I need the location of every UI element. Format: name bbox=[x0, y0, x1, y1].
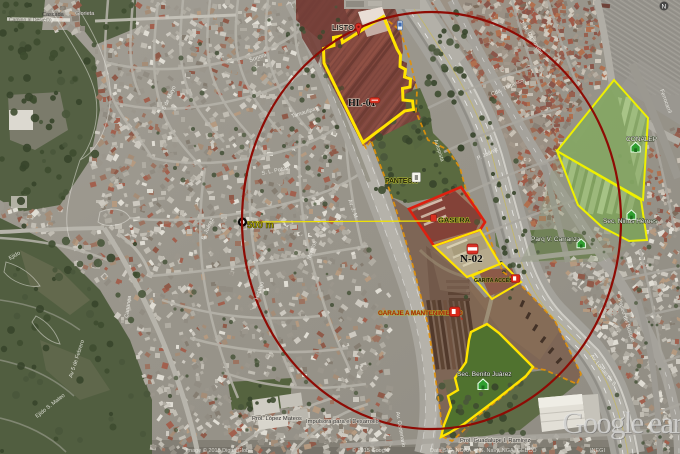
svg-text:Impulsora para el Desarrollo: Impulsora para el Desarrollo bbox=[306, 419, 379, 425]
svg-text:Sec. Benito Juárez: Sec. Benito Juárez bbox=[457, 371, 512, 378]
svg-text:Image © 2015 DigitalGlobe: Image © 2015 DigitalGlobe bbox=[186, 447, 252, 454]
svg-text:Prol. Guadalupe I. Ramírez: Prol. Guadalupe I. Ramírez bbox=[460, 438, 530, 444]
svg-text:500 m: 500 m bbox=[247, 220, 274, 231]
svg-text:N: N bbox=[662, 4, 667, 11]
svg-text:GASERA: GASERA bbox=[438, 216, 471, 225]
svg-text:Prol. López Mateos: Prol. López Mateos bbox=[252, 416, 302, 422]
svg-text:INEGI: INEGI bbox=[590, 448, 605, 454]
svg-text:N-02: N-02 bbox=[460, 253, 483, 265]
svg-text:LISTO: LISTO bbox=[332, 23, 354, 32]
svg-text:Data SIO, NOAA, U.S. Navy, NGA: Data SIO, NOAA, U.S. Navy, NGA, GEBCO bbox=[430, 448, 537, 454]
svg-text:Parq V. Carranza: Parq V. Carranza bbox=[531, 236, 581, 243]
svg-text:Glorieta: Glorieta bbox=[75, 11, 95, 17]
svg-text:Google earth: Google earth bbox=[562, 405, 680, 440]
svg-text:CONALEP: CONALEP bbox=[626, 136, 657, 143]
svg-text:GARITA ACCESO: GARITA ACCESO bbox=[474, 278, 517, 284]
svg-text:© 2015 Google: © 2015 Google bbox=[352, 447, 389, 454]
svg-text:Camino al Desierto: Camino al Desierto bbox=[9, 18, 52, 24]
